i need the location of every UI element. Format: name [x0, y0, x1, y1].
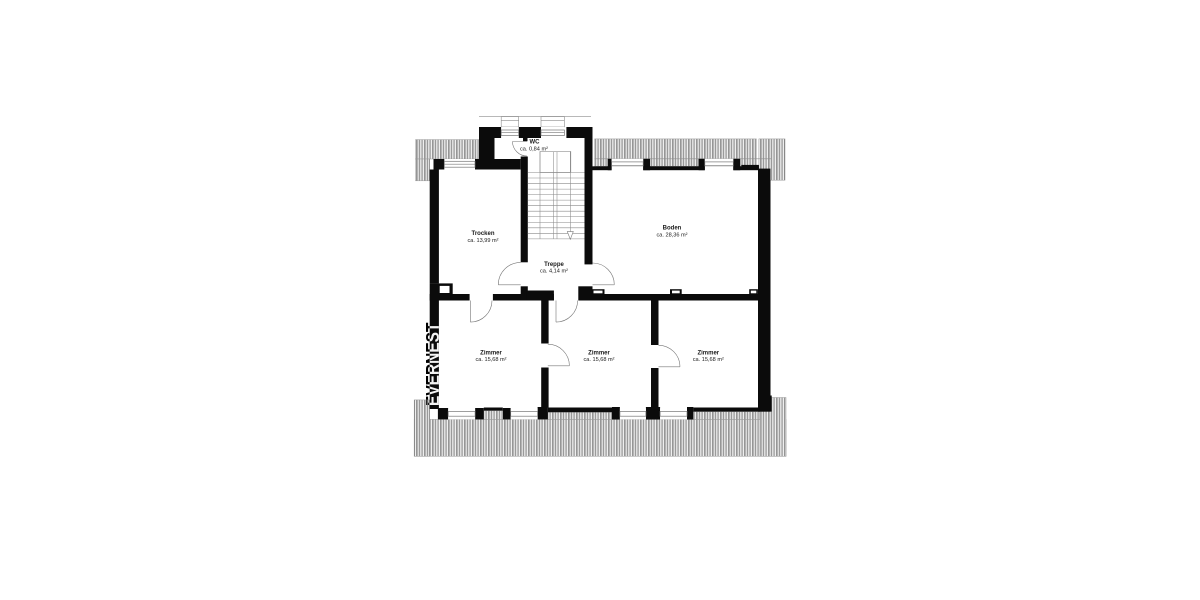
svg-text:Treppe: Treppe [544, 262, 564, 268]
svg-text:Zimmer: Zimmer [588, 350, 610, 356]
svg-text:WC: WC [530, 140, 541, 146]
svg-text:ca. 15,68 m²: ca. 15,68 m² [583, 357, 614, 363]
svg-text:ca. 0,84 m²: ca. 0,84 m² [520, 146, 548, 152]
svg-text:Zimmer: Zimmer [480, 350, 502, 356]
svg-text:ca. 13,99 m²: ca. 13,99 m² [467, 238, 498, 244]
svg-text:Trocken: Trocken [471, 231, 494, 237]
svg-text:ca. 28,36 m²: ca. 28,36 m² [656, 233, 687, 239]
svg-text:ca. 15,68 m²: ca. 15,68 m² [475, 357, 506, 363]
svg-text:ca. 4,14 m²: ca. 4,14 m² [540, 269, 568, 275]
svg-text:Boden: Boden [663, 225, 682, 231]
svg-text:ca. 15,68 m²: ca. 15,68 m² [693, 357, 724, 363]
svg-text:Zimmer: Zimmer [697, 350, 719, 356]
